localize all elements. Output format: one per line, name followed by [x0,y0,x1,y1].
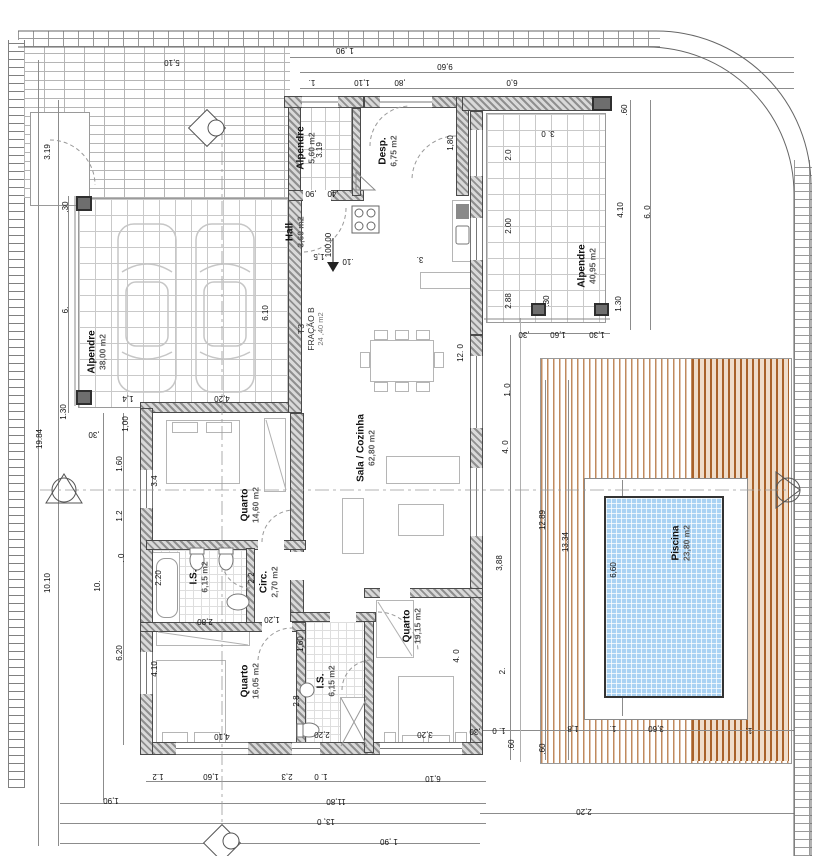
dimension-line [103,413,104,800]
room-label-bedroom3: Quarto 19,15 m2 [401,608,422,644]
dimension-line [58,100,59,846]
dim-label: 2. [499,668,507,675]
section-marker [204,825,241,856]
dimension-line [510,335,511,760]
dimension-line [300,88,794,89]
window [140,652,153,694]
stove-icon [352,206,379,233]
sidewalk-top [18,31,660,47]
chair [434,352,444,368]
dim-label: 6,0 [506,78,517,86]
pillow [206,422,232,433]
dim-label: 10. [94,580,102,591]
dim-label: 1.2 [152,772,163,780]
dimension-line [300,72,794,73]
level-marker [327,238,339,272]
door-opening [380,588,410,598]
room-label-side-porch: Alpendre 40,95 m2 [576,244,597,287]
porch-pillar [531,303,546,316]
sofa [342,498,364,554]
dimension-line [290,57,794,58]
window [176,742,248,755]
dim-label: 3. [417,255,424,263]
dim-label: 10.10 [44,573,52,593]
carport-pillar [76,196,92,211]
sofa [386,456,460,484]
door-opening [330,612,356,622]
dim-label: 1,30 [589,330,605,338]
pool [604,496,724,698]
dim-label: . 0 [118,554,126,563]
room-label-bedroom2: Quarto 16,05 m2 [239,663,260,699]
kitchen-island [420,272,476,289]
dim-label: 12. 0 [457,344,465,362]
dim-label: 1. [309,78,316,86]
dim-label: 4. 0 [453,649,461,662]
wall [352,108,361,196]
porch-pillar [594,303,609,316]
dimension-line [650,100,651,330]
dim-label: 1,10 [354,78,370,86]
room-label-carport: Alpendre 38,00 m2 [86,330,107,373]
wall [462,96,594,111]
wall [140,402,301,413]
wall [470,595,483,753]
dimension-line [123,413,124,745]
porch-pillar [592,96,612,111]
sliding-door [470,356,483,428]
wall [290,413,304,545]
room-label-entry-porch: Alpendre 5,60 m2 [295,126,316,169]
walkway-edge [520,318,521,762]
dim-label: 4.10 [617,202,625,218]
kitchen-counter [452,200,472,262]
room-label-hall: Hall 3,60 m2 [284,216,305,247]
sidewalk-right [794,160,812,856]
room-label-hallway: Circ. 2,70 m2 [258,566,279,597]
window [380,742,462,755]
chair [360,352,370,368]
dim-label: 1.30 [615,296,623,312]
dim-label: 1,5 [313,252,324,260]
entry-path [30,112,90,206]
dining-table [370,340,434,382]
dim-label: 3,88 [496,555,504,571]
chair [374,330,388,340]
dim-label: 2,3 [281,772,292,780]
dim-label: 1 ,90 [336,46,354,54]
chair [395,330,409,340]
window [380,96,432,108]
window [470,218,483,260]
dim-label: ,80 [394,78,405,86]
dimension-line [630,100,631,330]
wall [246,548,255,625]
dimension-line [146,781,486,782]
chair [416,330,430,340]
dimension-line [38,60,39,846]
dimension-line [545,380,546,760]
room-label-bathroom2: I.S. 6,15 m2 [315,665,336,696]
dimension-line [60,803,486,804]
dim-label: 9,60 [437,62,453,70]
chair [416,382,430,392]
wardrobe [156,630,250,646]
pillow [172,422,198,433]
boundary-wall-left [8,40,25,788]
dim-label: 1. 0 [314,772,327,780]
unit-label: T3 FRAÇÃO B 24 ,40 m2 [297,307,325,350]
wardrobe [264,418,286,492]
dimension-line [60,823,486,824]
floor-plan: Alpendre 38,00 m2 Alpendre 5,60 m2 Hall … [0,0,816,856]
dim-label: .10 [342,257,353,265]
dimension-line [470,730,794,731]
dim-label: 1,60 [203,772,219,780]
dim-label: 1,60 [550,330,566,338]
room-label-pantry: Desp. 6,75 m2 [377,135,398,166]
window [292,742,320,755]
bathtub-basin [156,558,178,618]
dimension-line [568,380,569,760]
room-label-bedroom1: Quarto 14,60 m2 [239,487,260,523]
window [140,470,153,508]
dim-label: 1,80 [447,135,455,151]
dim-label: 1.30 [60,404,68,420]
wall [296,630,306,753]
dim-label: .60 [621,104,629,115]
dimension-line [520,333,610,334]
side-porch-floor [486,113,606,323]
coffee-table [398,504,444,536]
dim-label: 100.00 [325,233,333,257]
dim-label: 4. 0 [502,440,510,453]
carport-pillar [76,390,92,405]
dimension-line [480,813,794,814]
room-label-pool: Piscina 23,80 m2 [670,525,691,561]
dimension-line [68,196,69,413]
door-opening [303,190,331,201]
dimension-line [60,843,480,844]
chair [395,382,409,392]
wall [364,612,374,753]
sliding-door [470,468,483,536]
door-opening [290,552,304,580]
window [302,96,338,108]
window [470,130,483,176]
door-opening [262,622,292,632]
section-marker [46,474,82,503]
carport-floor [78,198,290,408]
wall [456,96,469,196]
room-label-bathroom1: I.S. 6,15 m2 [188,561,209,592]
dim-label: ,30 [88,430,99,438]
room-label-living-kitchen: Sala / Cozinha 62,80 m2 [355,414,376,482]
door-opening [258,540,284,550]
wall [140,408,153,755]
chair [374,382,388,392]
